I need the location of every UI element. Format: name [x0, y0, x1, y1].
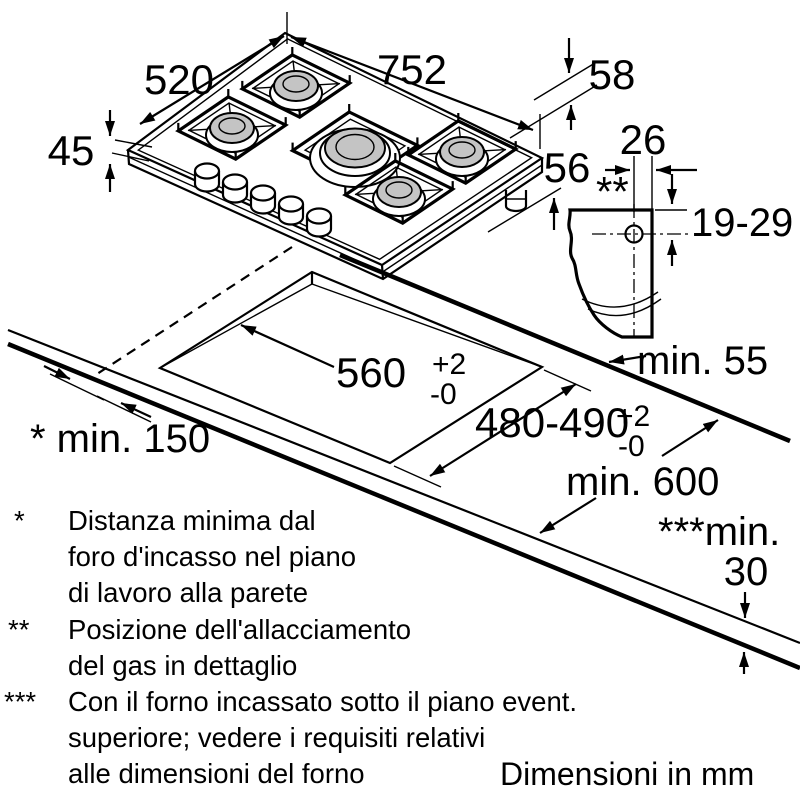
knob-1: [195, 164, 219, 192]
worktop-depth-label: min. 600: [566, 460, 719, 504]
gas-connection-detail: 26 ** 19-29: [569, 116, 793, 337]
legend-line: foro d'incasso nel piano: [68, 541, 356, 572]
pipe-width-label: 26: [620, 116, 667, 163]
break-line-2: [588, 299, 661, 316]
legend: * Distanza minima dal foro d'incasso nel…: [4, 505, 754, 792]
legend-line: Posizione dell'allacciamento: [68, 614, 411, 645]
depth-range-label: 19-29: [691, 201, 793, 245]
rear-clearance-label: min. 55: [637, 339, 768, 383]
knob-5: [307, 209, 331, 237]
below-clearance-value: 30: [724, 550, 769, 594]
legend-line: alle dimensioni del forno: [68, 758, 365, 789]
below-clearance-dimension: ***min. 30: [658, 510, 780, 674]
legend-line: Con il forno incassato sotto il piano ev…: [68, 686, 577, 717]
legend-marker-2: **: [8, 614, 30, 645]
side-clearance-label: * min. 150: [30, 417, 210, 461]
hob-height-label: 45: [48, 127, 95, 174]
worktop-view: 560 +2 -0 480-490 +2 -0 min. 55 * min. 1…: [8, 247, 800, 674]
below-clearance-label: ***min.: [658, 510, 780, 554]
knob-4: [279, 197, 303, 225]
hob-width-label: 752: [377, 46, 447, 93]
legend-line: del gas in dettaglio: [68, 650, 297, 681]
cutout-width-dimension: 560 +2 -0: [241, 325, 466, 411]
legend-marker-3: ***: [4, 686, 36, 717]
break-line-1: [582, 292, 658, 307]
detail-marker: **: [596, 168, 629, 215]
cutout-width-tol-plus: +2: [432, 348, 466, 381]
installation-diagram-page: 560 +2 -0 480-490 +2 -0 min. 55 * min. 1…: [0, 0, 800, 800]
cutout-width-label: 560: [336, 349, 406, 396]
technical-drawing: 560 +2 -0 480-490 +2 -0 min. 55 * min. 1…: [0, 0, 800, 800]
knob-2: [223, 175, 247, 203]
gas-drop-label: 56: [544, 144, 591, 191]
cutout-width-tol-minus: -0: [430, 378, 457, 411]
gas-offset-label: 58: [589, 51, 636, 98]
legend-line: Distanza minima dal: [68, 505, 316, 536]
hob-depth-label: 520: [144, 56, 214, 103]
cutout-depth-tol-plus: +2: [616, 400, 650, 433]
units-note: Dimensioni in mm: [500, 756, 754, 792]
legend-line: superiore; vedere i requisiti relativi: [68, 722, 485, 753]
cutout-depth-tol-minus: -0: [618, 430, 645, 463]
legend-marker-1: *: [14, 505, 25, 536]
cutout-depth-label: 480-490: [475, 399, 629, 446]
knob-3: [251, 186, 275, 214]
legend-line: di lavoro alla parete: [68, 577, 308, 608]
